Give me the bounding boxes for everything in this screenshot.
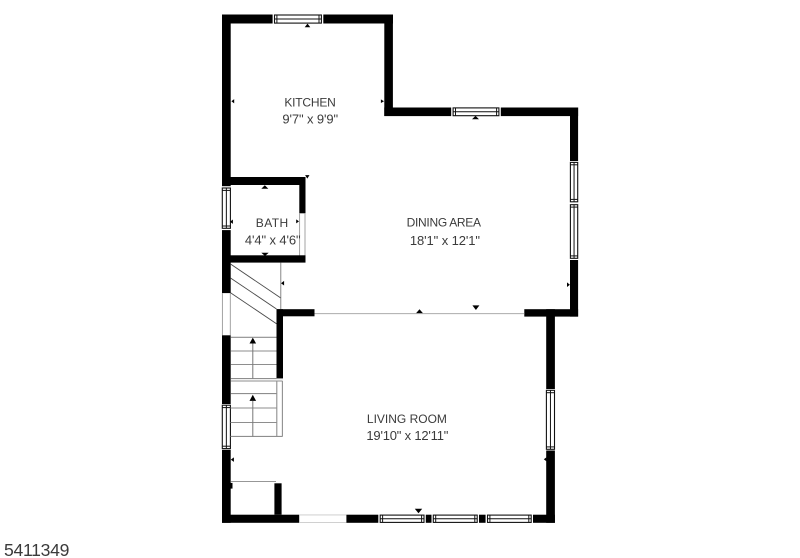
svg-text:LIVING ROOM: LIVING ROOM [367, 412, 447, 426]
svg-text:BATH: BATH [256, 216, 289, 230]
svg-text:19'10" x 12'11": 19'10" x 12'11" [366, 428, 448, 443]
svg-text:DINING AREA: DINING AREA [407, 216, 481, 230]
svg-text:5411349: 5411349 [4, 540, 69, 558]
svg-text:18'1" x 12'1": 18'1" x 12'1" [410, 233, 480, 248]
svg-text:4'4" x 4'6": 4'4" x 4'6" [245, 233, 301, 248]
svg-text:9'7" x 9'9": 9'7" x 9'9" [282, 112, 338, 127]
svg-text:KITCHEN: KITCHEN [284, 96, 335, 110]
